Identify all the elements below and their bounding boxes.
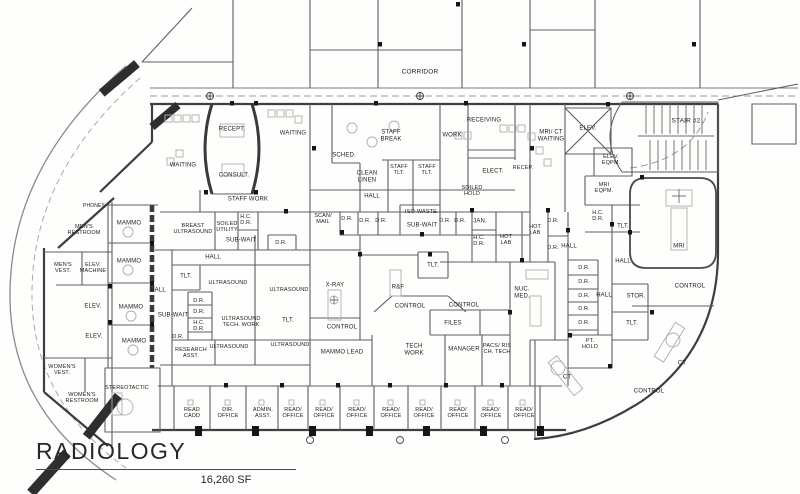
stair-treads [638, 104, 714, 170]
reception-barrel-walls [205, 104, 259, 194]
plan-area-label: 16,260 SF [36, 474, 296, 486]
floorplan-canvas: CORRIDORRECEPT.WAITINGWAITINGCONSULT.SCH… [0, 0, 800, 494]
interior-walls [44, 0, 798, 446]
title-block: RADIOLOGY 16,260 SF [36, 438, 336, 486]
office-dividers [174, 386, 540, 430]
title-underline [36, 469, 296, 470]
exterior-walls [44, 104, 718, 446]
mri-room-wall [630, 178, 716, 268]
floorplan-drawing [0, 0, 800, 494]
equipment-crosses [330, 189, 686, 304]
door-jambs [108, 2, 696, 388]
site-curve [10, 66, 126, 480]
pilaster-circles [307, 437, 509, 444]
plan-title: RADIOLOGY [36, 438, 336, 465]
furniture [112, 110, 692, 415]
corridor-centerline [150, 96, 798, 168]
